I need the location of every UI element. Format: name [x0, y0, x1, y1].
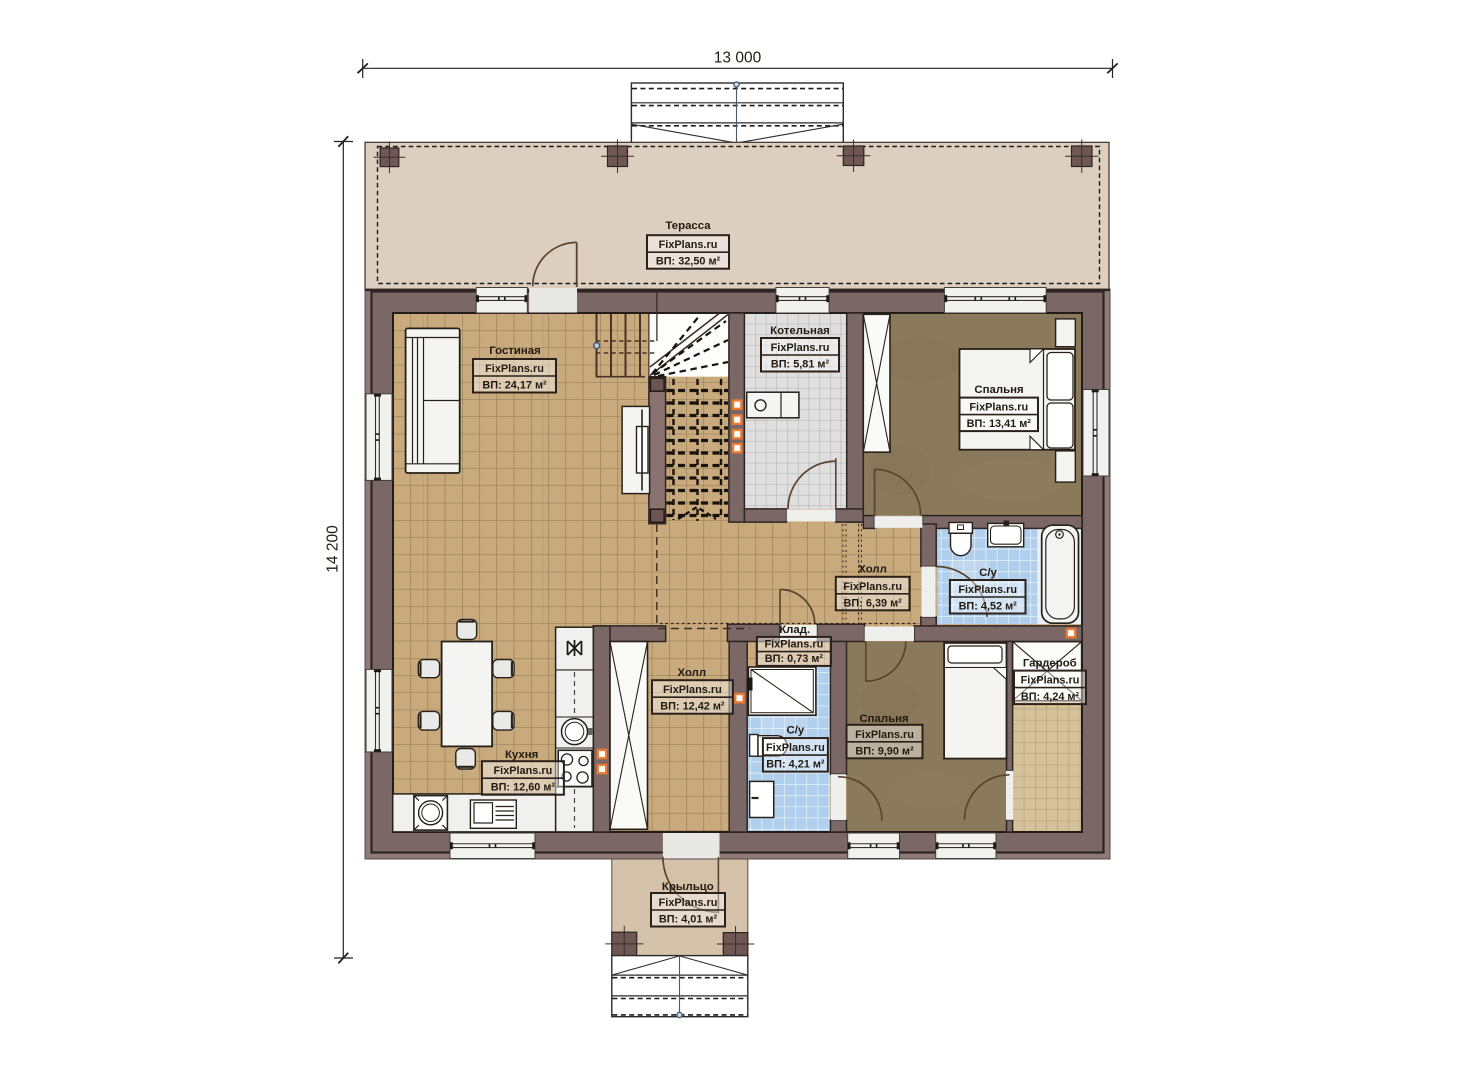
svg-text:Холл: Холл	[858, 564, 887, 576]
svg-text:FixPlans.ru: FixPlans.ru	[843, 581, 902, 593]
svg-text:Спальня: Спальня	[974, 384, 1023, 396]
svg-text:ВП: 6,39 м²: ВП: 6,39 м²	[844, 597, 903, 609]
svg-text:FixPlans.ru: FixPlans.ru	[958, 584, 1017, 596]
svg-text:Гардероб: Гардероб	[1023, 658, 1077, 670]
svg-text:ВП: 32,50 м²: ВП: 32,50 м²	[656, 256, 721, 268]
svg-text:Спальня: Спальня	[859, 713, 908, 725]
svg-text:FixPlans.ru: FixPlans.ru	[659, 897, 718, 909]
svg-text:ВП: 24,17 м²: ВП: 24,17 м²	[482, 380, 547, 392]
svg-text:ВП: 12,60 м²: ВП: 12,60 м²	[491, 782, 556, 794]
svg-text:С/у: С/у	[979, 567, 997, 579]
svg-text:С/у: С/у	[787, 725, 805, 737]
svg-text:ВП: 4,24 м²: ВП: 4,24 м²	[1021, 691, 1080, 703]
svg-text:Терасса: Терасса	[665, 220, 711, 232]
svg-text:Клад.: Клад.	[779, 624, 810, 636]
svg-text:13 000: 13 000	[714, 50, 762, 67]
svg-text:FixPlans.ru: FixPlans.ru	[1021, 675, 1080, 687]
svg-text:FixPlans.ru: FixPlans.ru	[771, 342, 830, 354]
svg-text:ВП: 0,73 м²: ВП: 0,73 м²	[765, 653, 824, 665]
svg-text:FixPlans.ru: FixPlans.ru	[659, 239, 718, 251]
svg-text:Гостиная: Гостиная	[489, 345, 540, 357]
svg-text:ВП: 12,42 м²: ВП: 12,42 м²	[660, 701, 725, 713]
svg-text:FixPlans.ru: FixPlans.ru	[765, 639, 824, 651]
svg-text:Крыльцо: Крыльцо	[662, 881, 714, 893]
svg-text:ВП: 4,01 м²: ВП: 4,01 м²	[659, 914, 718, 926]
svg-text:ВП: 4,21 м²: ВП: 4,21 м²	[766, 759, 825, 771]
svg-text:FixPlans.ru: FixPlans.ru	[663, 684, 722, 696]
svg-text:FixPlans.ru: FixPlans.ru	[485, 363, 544, 375]
svg-text:Кухня: Кухня	[505, 749, 538, 761]
svg-text:FixPlans.ru: FixPlans.ru	[855, 729, 914, 741]
svg-text:ВП: 4,52 м²: ВП: 4,52 м²	[959, 601, 1018, 613]
svg-text:ВП: 9,90 м²: ВП: 9,90 м²	[855, 745, 914, 757]
svg-text:ВП: 5,81 м²: ВП: 5,81 м²	[771, 359, 830, 371]
svg-text:ВП: 13,41 м²: ВП: 13,41 м²	[967, 418, 1032, 430]
svg-text:FixPlans.ru: FixPlans.ru	[766, 742, 825, 754]
svg-text:Холл: Холл	[678, 667, 707, 679]
svg-text:FixPlans.ru: FixPlans.ru	[494, 765, 553, 777]
svg-text:Котельная: Котельная	[770, 325, 830, 337]
svg-text:FixPlans.ru: FixPlans.ru	[969, 402, 1028, 414]
svg-text:14 200: 14 200	[325, 525, 342, 573]
